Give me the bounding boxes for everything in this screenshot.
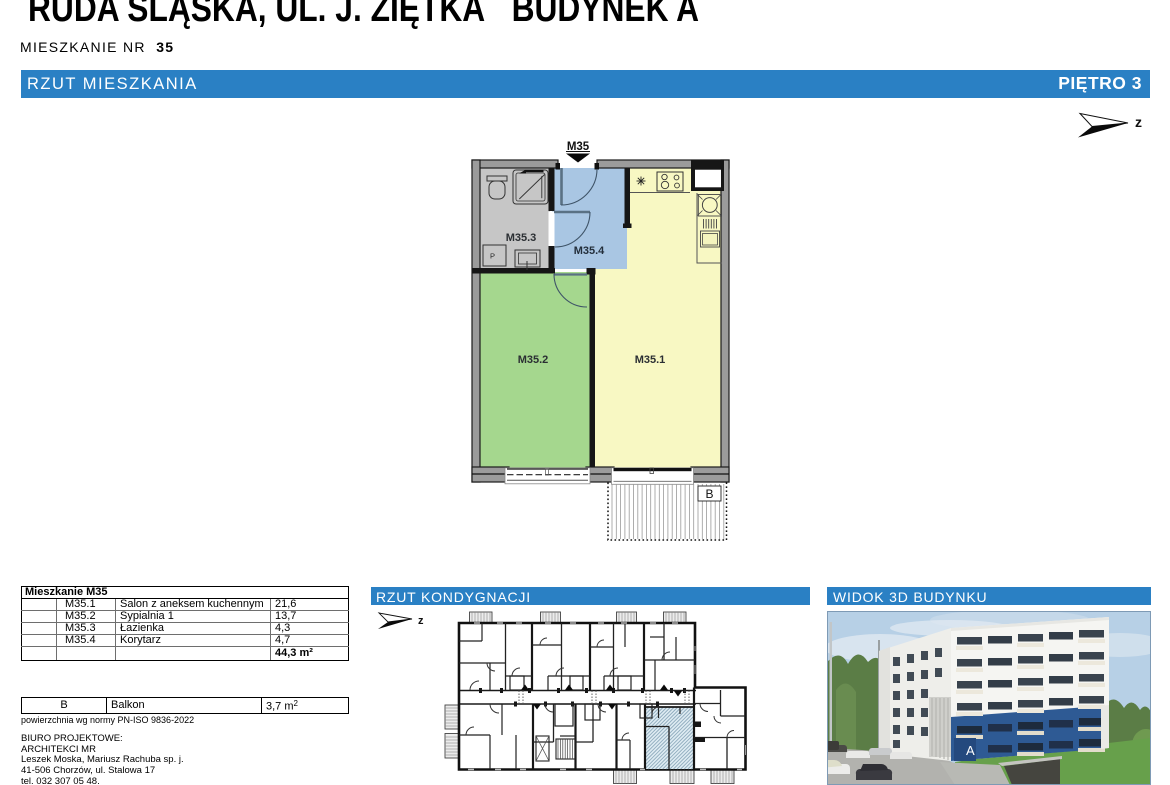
svg-text:M35.1: M35.1 [635,354,666,366]
svg-text:A: A [966,743,975,758]
svg-text:z: z [1135,114,1142,130]
svg-text:M35.4: M35.4 [574,245,605,257]
svg-text:P: P [490,252,495,261]
svg-text:M35.2: M35.2 [518,354,549,366]
svg-text:B: B [705,487,713,501]
svg-text:M35.3: M35.3 [506,232,537,244]
svg-text:z: z [418,615,424,627]
